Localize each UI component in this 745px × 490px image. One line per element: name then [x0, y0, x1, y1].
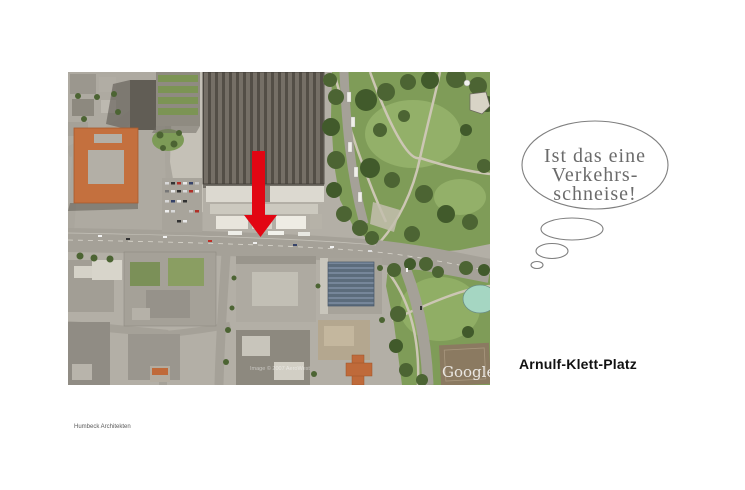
glass-roof-building — [328, 262, 374, 306]
imagery-copyright-watermark: Image © 2007 AeroWest — [250, 365, 310, 372]
thought-bubble: Ist das eine Verkehrs- schneise! — [500, 110, 710, 280]
google-watermark: Google — [442, 363, 490, 381]
parking-lot — [162, 178, 202, 232]
orange-roof-building — [68, 128, 138, 211]
aerial-map-image: Image © 2007 AeroWest Google — [68, 72, 490, 385]
bubble-trail-2 — [536, 244, 568, 259]
bubble-text-line-3: schneise! — [553, 183, 636, 205]
place-label: Arnulf-Klett-Platz — [519, 356, 637, 372]
bubble-trail-3 — [531, 262, 543, 269]
bubble-trail-1 — [541, 218, 603, 240]
slide: Image © 2007 AeroWest Google Ist das ein… — [0, 0, 745, 490]
footer-credit: Humbeck Architekten — [74, 424, 131, 430]
